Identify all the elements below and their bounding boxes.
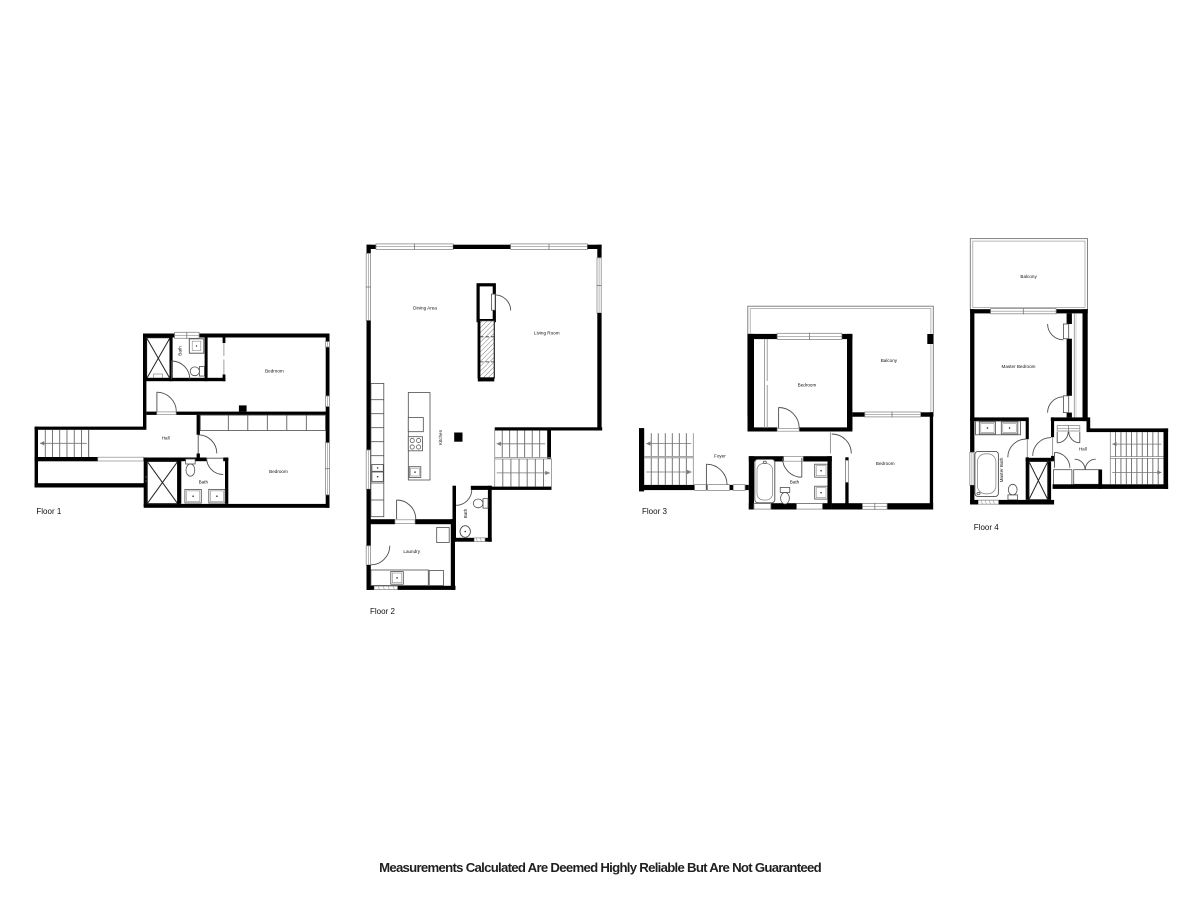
svg-text:Laundry: Laundry <box>403 549 420 554</box>
svg-text:Bedroom: Bedroom <box>269 469 288 474</box>
svg-text:Balcony: Balcony <box>1020 274 1037 279</box>
svg-text:Bath: Bath <box>790 479 800 484</box>
svg-text:Floor 3: Floor 3 <box>642 507 667 516</box>
svg-text:Bedroom: Bedroom <box>798 383 817 388</box>
svg-text:Master Bedroom: Master Bedroom <box>1002 364 1036 369</box>
svg-text:Hall: Hall <box>1079 447 1087 452</box>
svg-text:Bath: Bath <box>177 346 182 356</box>
svg-text:Floor 2: Floor 2 <box>370 607 395 616</box>
svg-text:Bath: Bath <box>463 508 468 518</box>
svg-text:Floor 1: Floor 1 <box>36 507 61 516</box>
svg-text:Balcony: Balcony <box>881 358 898 363</box>
svg-text:Master Bath: Master Bath <box>999 457 1004 482</box>
svg-text:Bedroom: Bedroom <box>265 369 284 374</box>
svg-text:Floor 4: Floor 4 <box>974 523 999 532</box>
svg-text:Measurements Calculated Are De: Measurements Calculated Are Deemed Highl… <box>379 860 822 875</box>
svg-text:Bath: Bath <box>199 479 209 484</box>
svg-text:Hall: Hall <box>162 436 170 441</box>
svg-text:Dining Area: Dining Area <box>413 306 437 311</box>
svg-text:Kitchen: Kitchen <box>438 429 443 445</box>
svg-text:Bedroom: Bedroom <box>876 461 895 466</box>
svg-text:Foyer: Foyer <box>714 453 726 458</box>
svg-text:Living Room: Living Room <box>534 330 560 335</box>
